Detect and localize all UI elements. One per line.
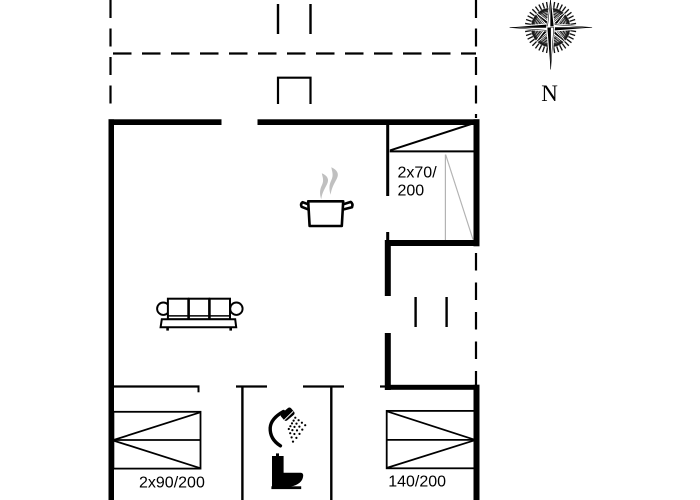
svg-text:200: 200 [398, 183, 425, 200]
svg-text:2x70/: 2x70/ [398, 164, 438, 181]
svg-text:2x90/200: 2x90/200 [139, 475, 205, 492]
svg-text:140/200: 140/200 [388, 474, 446, 491]
svg-text:N: N [541, 81, 558, 106]
